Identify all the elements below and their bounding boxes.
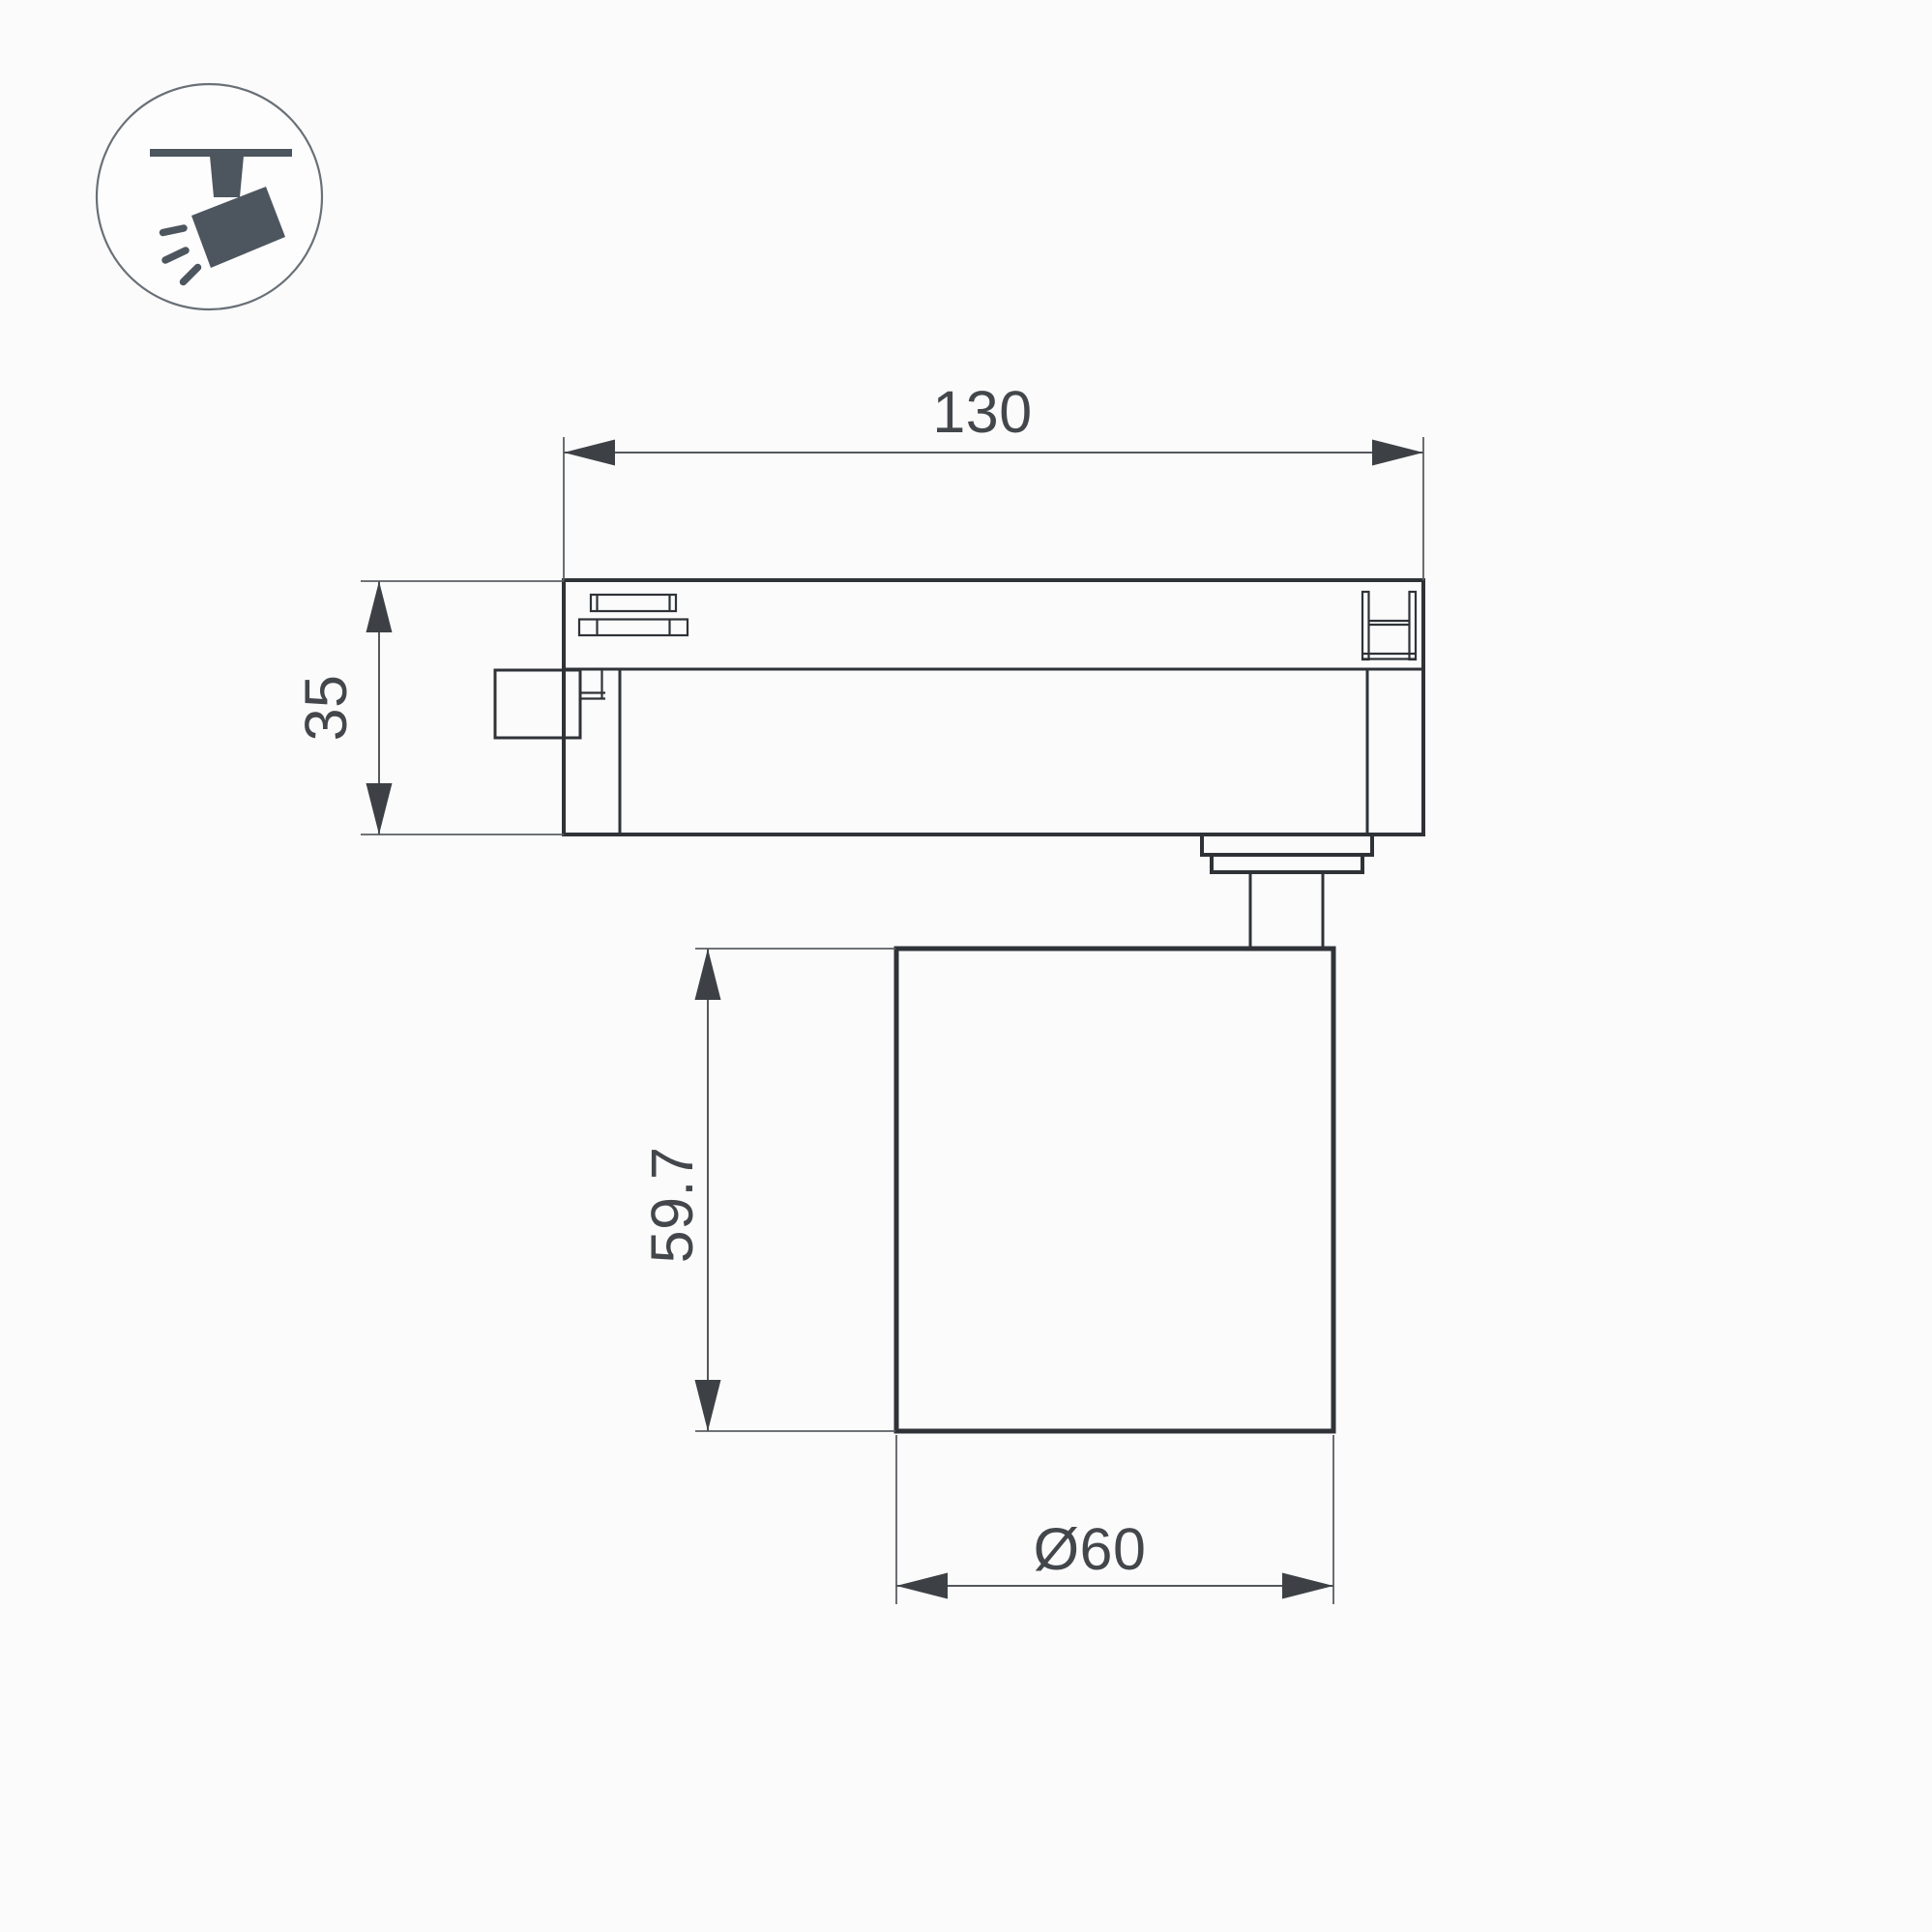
dimension-lamp-diameter: Ø60 <box>896 1435 1333 1604</box>
lamp-body-view <box>896 949 1333 1431</box>
side-lock-tab <box>495 670 580 738</box>
track-spotlight-icon <box>97 84 322 309</box>
dimension-track-width: 130 <box>564 379 1423 580</box>
joint-plate-narrow <box>1212 855 1362 872</box>
dimension-lamp-height: 59.7 <box>639 949 895 1431</box>
arrow-left <box>564 440 615 466</box>
joint-stem <box>1250 872 1323 949</box>
icon-light-ray-1 <box>163 228 185 233</box>
dimension-adapter-height: 35 <box>293 581 564 834</box>
latch-upper-contact <box>591 595 676 611</box>
adapter-body-outline <box>564 580 1423 834</box>
lamp-body-outline <box>896 949 1333 1431</box>
icon-track-bar <box>150 149 292 157</box>
dim-value-track-width: 130 <box>932 379 1032 445</box>
track-adapter-view <box>495 580 1423 949</box>
icon-fixture-stem <box>210 156 244 197</box>
arrow-left <box>896 1573 948 1599</box>
arrow-down <box>366 783 393 834</box>
joint-plate-wide <box>1202 834 1372 855</box>
dim-value-adapter-height: 35 <box>293 675 359 742</box>
dim-value-lamp-diameter: Ø60 <box>1034 1516 1147 1582</box>
icon-circle-badge <box>97 84 322 309</box>
clip-left-wall <box>1362 592 1369 659</box>
arrow-up <box>366 581 393 632</box>
latch-lower-contact <box>579 620 688 636</box>
arrow-up <box>695 949 721 1000</box>
arrow-down <box>695 1380 721 1431</box>
arrow-right <box>1372 440 1423 466</box>
dim-value-lamp-height: 59.7 <box>639 1147 705 1264</box>
clip-right-wall <box>1410 592 1417 659</box>
technical-drawing-page: 130 35 59.7 Ø60 <box>0 0 1932 1932</box>
arrow-right <box>1282 1573 1333 1599</box>
